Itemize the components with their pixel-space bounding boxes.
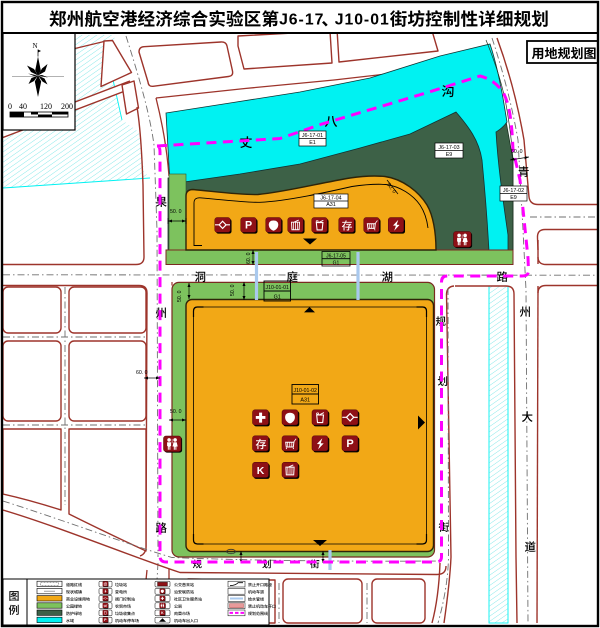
svg-text:0: 0: [354, 12, 363, 29]
svg-text:1: 1: [305, 12, 314, 29]
svg-text:60. 0: 60. 0: [511, 149, 523, 155]
svg-text:120: 120: [40, 102, 52, 111]
svg-text:J10-01-01: J10-01-01: [266, 285, 289, 291]
svg-text:G1: G1: [333, 261, 340, 267]
svg-text:E9: E9: [446, 152, 453, 158]
svg-text:40: 40: [19, 102, 27, 111]
svg-text:50. 0: 50. 0: [177, 290, 183, 302]
svg-text:6: 6: [289, 12, 298, 29]
svg-text:E9: E9: [510, 195, 517, 201]
svg-text:J6-17-04: J6-17-04: [320, 196, 341, 202]
svg-text:J: J: [335, 12, 344, 29]
svg-text:A31: A31: [326, 202, 336, 208]
svg-text:A31: A31: [300, 398, 310, 404]
svg-text:J6-17-02: J6-17-02: [503, 188, 524, 194]
svg-text:0: 0: [8, 102, 12, 111]
svg-text:1: 1: [345, 12, 354, 29]
svg-text:G1: G1: [274, 295, 281, 301]
svg-text:J6-17-05: J6-17-05: [326, 253, 346, 259]
svg-text:E1: E1: [309, 140, 316, 146]
svg-text:60. 0: 60. 0: [246, 252, 252, 264]
svg-text:1: 1: [380, 12, 389, 29]
svg-text:0: 0: [370, 12, 379, 29]
svg-text:50. 0: 50. 0: [170, 409, 182, 415]
svg-text:J: J: [279, 12, 288, 29]
svg-text:60. 0: 60. 0: [136, 370, 148, 376]
svg-text:200: 200: [61, 102, 73, 111]
svg-text:-: -: [299, 12, 304, 29]
svg-text:J6-17-03: J6-17-03: [438, 145, 459, 151]
svg-text:N: N: [33, 42, 38, 50]
svg-text:50. 0: 50. 0: [170, 209, 182, 215]
svg-text:J6-17-01: J6-17-01: [302, 133, 323, 139]
svg-text:-: -: [364, 12, 369, 29]
svg-text:7: 7: [315, 12, 324, 29]
svg-text:J10-01-02: J10-01-02: [294, 388, 317, 394]
svg-text:50. 0: 50. 0: [230, 284, 236, 296]
